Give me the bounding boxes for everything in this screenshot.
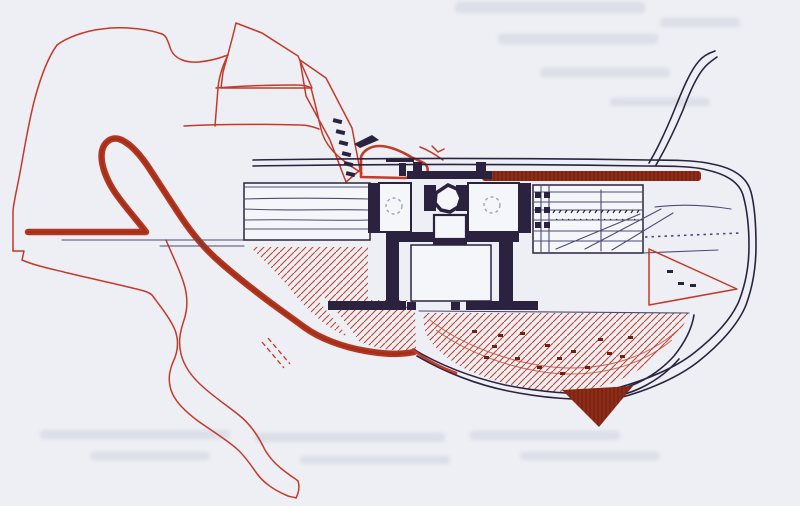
upper-hatched-wedge: [221, 23, 312, 88]
courtyard-outline: [411, 245, 491, 301]
right-wing: [533, 185, 740, 253]
triangle-mark-2: [678, 282, 684, 285]
bottom-post-right: [451, 302, 460, 310]
wedge-shape: [221, 23, 312, 88]
panel-dotted-line: [645, 233, 740, 237]
boundary-top: [57, 28, 228, 62]
triangle-mark-1: [667, 270, 673, 273]
outer-wall-right: [519, 183, 531, 233]
dark-red-triangle: [562, 386, 633, 427]
tick-hatch-band: [552, 210, 640, 220]
boundary-shelf: [13, 251, 152, 295]
dashed-crossing: [262, 338, 290, 368]
room-right: [468, 183, 519, 232]
top-post-right: [476, 162, 486, 171]
boundary-left: [13, 45, 57, 251]
wing-line-4: [244, 220, 370, 221]
fan-top-line: [419, 311, 689, 313]
left-wing-body: [244, 183, 370, 240]
right-hatch-triangle: [649, 249, 737, 305]
scanned-sketch-page: [0, 0, 800, 506]
stream-outer: [152, 295, 296, 498]
left-site-lines: [62, 240, 244, 246]
room-left: [379, 183, 411, 232]
bottom-wall-left: [328, 301, 406, 310]
bottom-post-left: [407, 302, 416, 310]
top-wall: [407, 171, 492, 179]
left-wing: [244, 183, 370, 240]
top-post-left: [413, 162, 422, 171]
knoll-left-edge: [215, 55, 228, 126]
triangle-mark-3: [690, 284, 696, 287]
altar-box: [434, 215, 466, 239]
garden-fan: [419, 311, 689, 392]
right-triangle-shape: [649, 249, 737, 305]
octagon-fountain: [435, 185, 461, 212]
u-wall-left: [386, 232, 399, 309]
panel-wavy-line: [655, 205, 731, 209]
bottom-wall-right: [466, 301, 538, 310]
site-plan-sketch: [0, 0, 800, 506]
contour-line-lower: [184, 124, 319, 129]
colonnade-roof-bar: [482, 171, 701, 181]
outer-wall-left: [368, 183, 379, 233]
u-wall-right: [499, 232, 513, 309]
hatched-slope-band: [300, 60, 360, 182]
fan-shape: [424, 313, 689, 392]
